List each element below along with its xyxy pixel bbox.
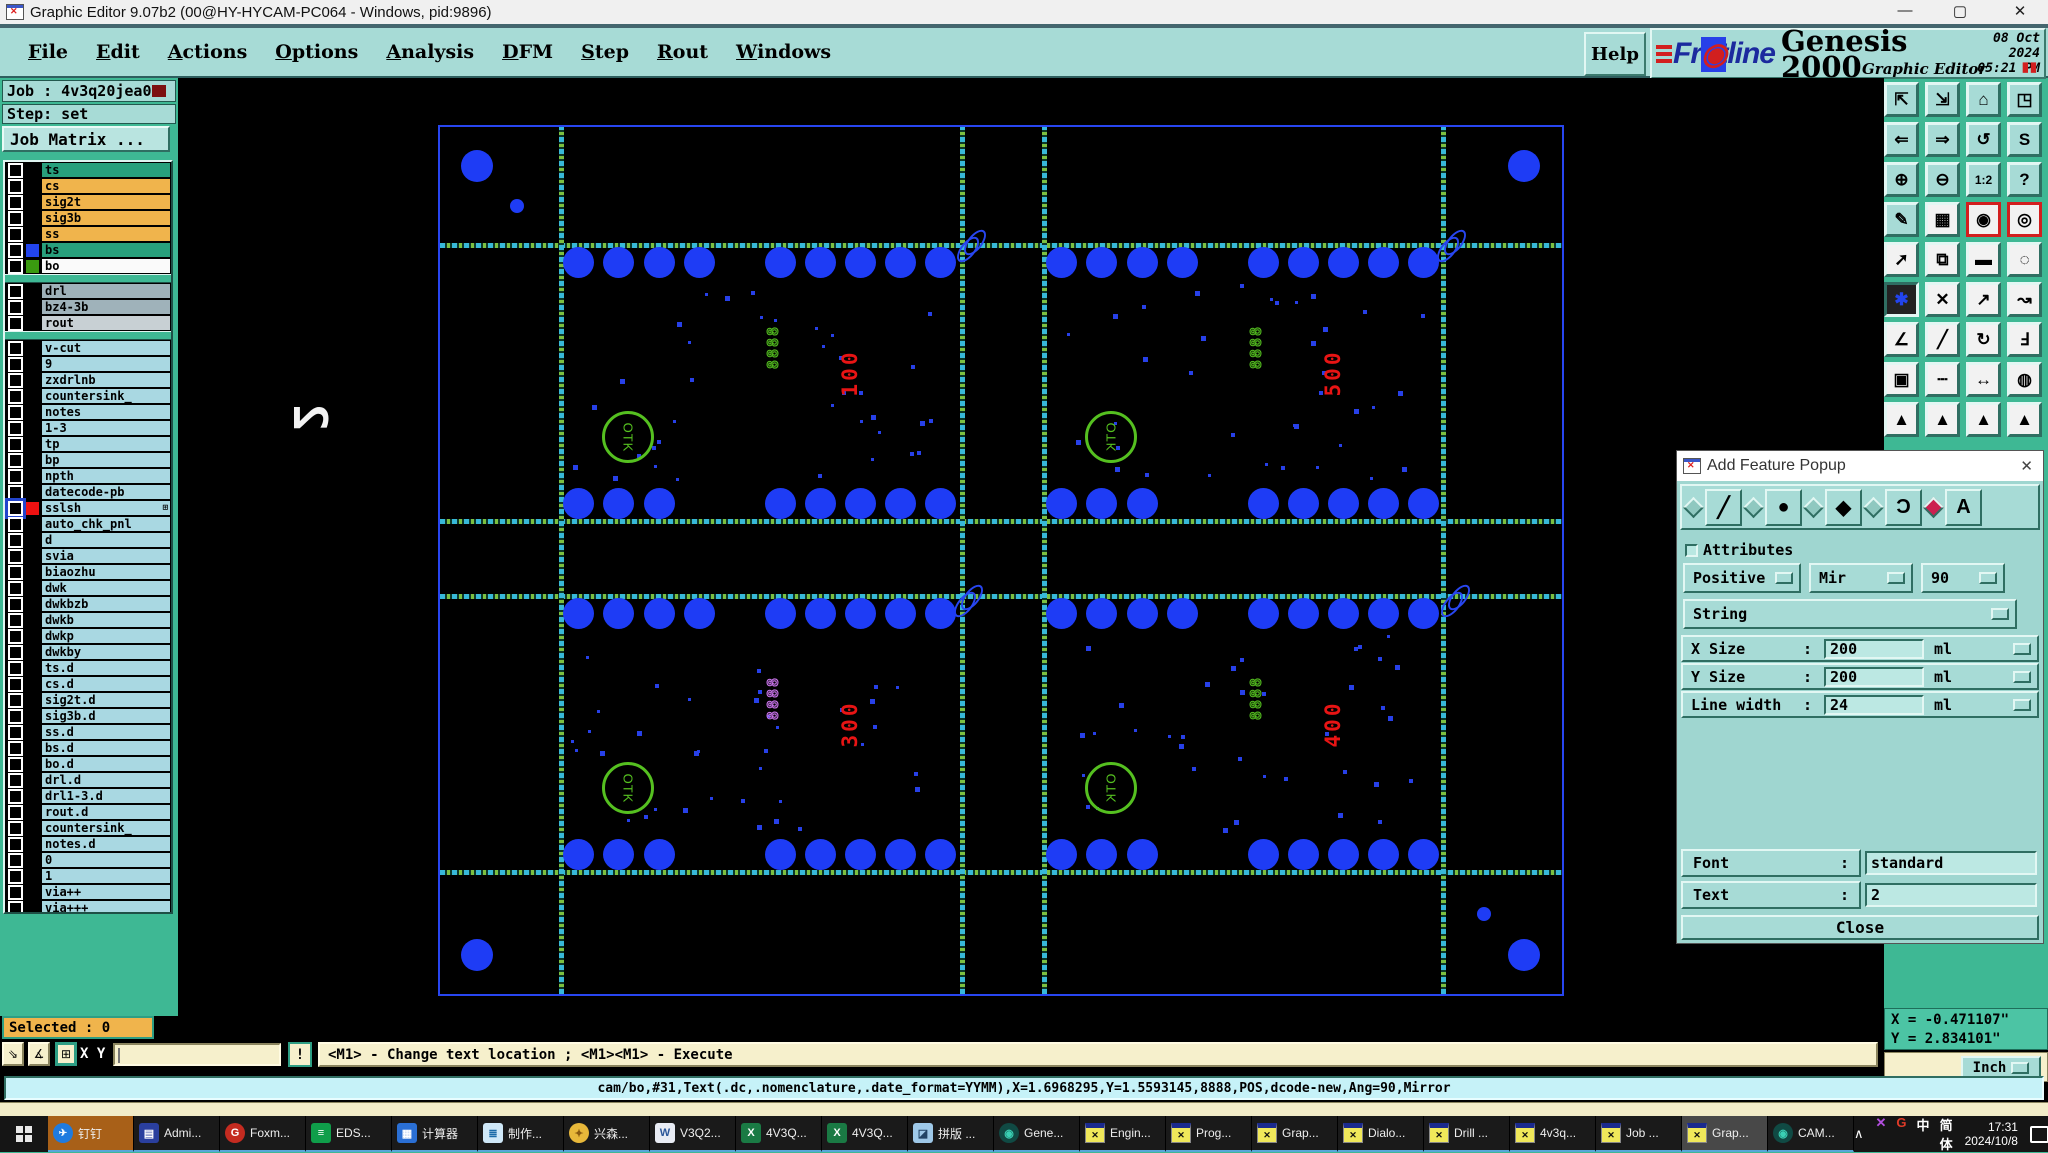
layer-row-npth[interactable]: npth (5, 468, 171, 484)
layer-name[interactable]: zxdrlnb (41, 372, 171, 388)
taskbar-item-拼版[interactable]: 拼版 ... (908, 1116, 994, 1152)
surface-tool-icon[interactable]: ◆ (1825, 489, 1862, 526)
layer-row-bs[interactable]: bs (5, 242, 171, 258)
pad[interactable] (1288, 488, 1319, 519)
layer-visibility-checkbox[interactable] (8, 501, 23, 516)
pad[interactable] (765, 247, 796, 278)
pcb-canvas[interactable]: 2 OTK1008888OTK5008888OTK3008888OTK40088… (178, 78, 1884, 1016)
layer-name[interactable]: rout (41, 315, 171, 331)
menu-actions[interactable]: Actions (168, 41, 248, 63)
layer-visibility-checkbox[interactable] (8, 693, 23, 708)
layer-row-sig3b[interactable]: sig3b (5, 210, 171, 226)
layer-row-zxdrlnb[interactable]: zxdrlnb (5, 372, 171, 388)
menu-analysis[interactable]: Analysis (386, 41, 474, 63)
layer-visibility-checkbox[interactable] (8, 789, 23, 804)
pad-swap-icon[interactable]: ▣ (1884, 362, 1919, 397)
pad[interactable] (563, 247, 594, 278)
layer-row-notes.d[interactable]: notes.d (5, 836, 171, 852)
layer-visibility-checkbox[interactable] (8, 533, 23, 548)
overlap-circles-icon[interactable]: ◍ (2007, 362, 2042, 397)
layer-visibility-checkbox[interactable] (8, 837, 23, 852)
pad[interactable] (885, 839, 916, 870)
pcb-board-top-left[interactable]: OTK1008888 (559, 243, 960, 519)
layer-visibility-checkbox[interactable] (8, 163, 23, 178)
pad[interactable] (1086, 839, 1117, 870)
x-size-input[interactable]: 200 (1824, 639, 1924, 659)
layer-visibility-checkbox[interactable] (8, 357, 23, 372)
window-xy-icon[interactable]: ◳ (2007, 82, 2042, 117)
layer-visibility-checkbox[interactable] (8, 741, 23, 756)
net-highlight-a-icon[interactable]: ◉ (1966, 202, 2001, 237)
pad[interactable] (805, 839, 836, 870)
layer-visibility-checkbox[interactable] (8, 821, 23, 836)
line-width-input[interactable]: 24 (1824, 695, 1924, 715)
taskbar-item-钉钉[interactable]: 钉钉 (48, 1116, 134, 1152)
layer-row-sig2t[interactable]: sig2t (5, 194, 171, 210)
pad[interactable] (603, 598, 634, 629)
layer-name[interactable]: bz4-3b (41, 299, 171, 315)
taskbar-item-gene[interactable]: Gene... (994, 1116, 1080, 1152)
layer-name[interactable]: ss.d (41, 724, 171, 740)
pad[interactable] (563, 598, 594, 629)
warning-button[interactable]: ! (288, 1042, 312, 1067)
home-view-icon[interactable]: ⌂ (1966, 82, 2001, 117)
layer-name[interactable]: drl.d (41, 772, 171, 788)
layer-name[interactable]: bo.d (41, 756, 171, 772)
layer-name[interactable]: 9 (41, 356, 171, 372)
close-button[interactable]: ✕ (2005, 2, 2035, 20)
start-button[interactable] (0, 1116, 48, 1152)
layer-row-countersink_[interactable]: countersink_ (5, 820, 171, 836)
tray-g-icon[interactable]: G (1896, 1115, 1906, 1153)
layer-name[interactable]: dwkb (41, 612, 171, 628)
layer-row-bs.d[interactable]: bs.d (5, 740, 171, 756)
pad[interactable] (684, 598, 715, 629)
line-tool-icon[interactable]: ╱ (1705, 489, 1742, 526)
apex-c-icon[interactable]: ▲ (1966, 402, 2001, 437)
pad[interactable] (925, 488, 956, 519)
layer-row-bz4-3b[interactable]: bz4-3b (5, 299, 171, 315)
line-tool-selector[interactable] (1683, 496, 1704, 517)
pad[interactable] (845, 598, 876, 629)
layer-visibility-checkbox[interactable] (8, 243, 23, 258)
taskbar-item-cam[interactable]: CAM... (1768, 1116, 1854, 1152)
pcb-board-top-right[interactable]: OTK5008888 (1042, 243, 1443, 519)
layer-name[interactable]: drl (41, 283, 171, 299)
width-measure-icon[interactable]: ↔ (1966, 362, 2001, 397)
taskbar-item-4v3q[interactable]: 4V3Q... (822, 1116, 908, 1152)
pad[interactable] (805, 488, 836, 519)
pad[interactable] (1046, 839, 1077, 870)
layer-visibility-checkbox[interactable] (8, 421, 23, 436)
menu-dfm[interactable]: DFM (502, 41, 553, 63)
layer-name[interactable]: dwkby (41, 644, 171, 660)
menu-file[interactable]: File (28, 41, 68, 63)
menu-edit[interactable]: Edit (96, 41, 140, 63)
layer-name[interactable]: 1 (41, 868, 171, 884)
layer-row-cs[interactable]: cs (5, 178, 171, 194)
layer-visibility-checkbox[interactable] (8, 373, 23, 388)
pad[interactable] (1086, 598, 1117, 629)
layer-row-ss[interactable]: ss (5, 226, 171, 242)
pad[interactable] (684, 247, 715, 278)
layer-name[interactable]: notes.d (41, 836, 171, 852)
pad[interactable] (1408, 247, 1439, 278)
layer-row-dwkp[interactable]: dwkp (5, 628, 171, 644)
layer-name[interactable]: bs (41, 242, 171, 258)
pad[interactable] (1248, 488, 1279, 519)
layer-name[interactable]: svia (41, 548, 171, 564)
layer-visibility-checkbox[interactable] (8, 645, 23, 660)
grid-icon[interactable]: ▦ (1925, 202, 1960, 237)
layer-name[interactable]: ts.d (41, 660, 171, 676)
layer-row-v-cut[interactable]: v-cut (5, 340, 171, 356)
pad[interactable] (805, 598, 836, 629)
pad[interactable] (1127, 488, 1158, 519)
layer-row-auto_chk_pnl[interactable]: auto_chk_pnl (5, 516, 171, 532)
pad[interactable] (1046, 247, 1077, 278)
text-tool-icon[interactable]: A (1945, 489, 1982, 526)
pad[interactable] (563, 488, 594, 519)
job-matrix-button[interactable]: Job Matrix ... (2, 126, 170, 152)
copy-feature-icon[interactable]: ⧉ (1925, 242, 1960, 277)
layer-row-cs.d[interactable]: cs.d (5, 676, 171, 692)
apex-a-icon[interactable]: ▲ (1884, 402, 1919, 437)
layer-name[interactable]: dwkp (41, 628, 171, 644)
attributes-checkbox[interactable] (1685, 544, 1698, 557)
layer-row-drl.d[interactable]: drl.d (5, 772, 171, 788)
taskbar-item-4v3q[interactable]: 4V3Q... (736, 1116, 822, 1152)
angle-measure-icon[interactable]: ∠ (1884, 322, 1919, 357)
mirror-feature-icon[interactable]: Ⅎ (2007, 322, 2042, 357)
pad[interactable] (925, 839, 956, 870)
scale-1-2-icon[interactable]: 1:2 (1966, 162, 2001, 197)
layer-name[interactable]: via+++ (41, 900, 171, 914)
previous-view-icon[interactable]: ↺ (1966, 122, 2001, 157)
pad[interactable] (603, 488, 634, 519)
pad[interactable] (603, 839, 634, 870)
pad[interactable] (925, 247, 956, 278)
pad[interactable] (1288, 839, 1319, 870)
layer-row-datecode-pb[interactable]: datecode-pb (5, 484, 171, 500)
notification-center[interactable]: 1 (2030, 1126, 2048, 1143)
pad[interactable] (644, 839, 675, 870)
layer-name[interactable]: countersink_ (41, 388, 171, 404)
pad[interactable] (1328, 247, 1359, 278)
taskbar-item-drill[interactable]: Drill ... (1424, 1116, 1510, 1152)
layer-visibility-checkbox[interactable] (8, 284, 23, 299)
menu-step[interactable]: Step (581, 41, 629, 63)
popup-title-bar[interactable]: Add Feature Popup ✕ (1677, 451, 2043, 481)
layer-row-d[interactable]: d (5, 532, 171, 548)
minimize-button[interactable]: — (1890, 2, 1920, 19)
pad[interactable] (1086, 247, 1117, 278)
layer-visibility-checkbox[interactable] (8, 437, 23, 452)
menu-help[interactable]: Help (1584, 32, 1646, 76)
layer-name[interactable]: ss (41, 226, 171, 242)
layer-visibility-checkbox[interactable] (8, 195, 23, 210)
pad[interactable] (1408, 598, 1439, 629)
layer-visibility-checkbox[interactable] (8, 581, 23, 596)
cluster-icon[interactable]: ✱ (1884, 282, 1919, 317)
pad[interactable] (563, 839, 594, 870)
layer-visibility-checkbox[interactable] (8, 405, 23, 420)
layer-visibility-checkbox[interactable] (8, 677, 23, 692)
layer-visibility-checkbox[interactable] (8, 227, 23, 242)
pad[interactable] (644, 488, 675, 519)
layer-row-biaozhu[interactable]: biaozhu (5, 564, 171, 580)
layer-name[interactable]: ts (41, 162, 171, 178)
pcb-board-bottom-left[interactable]: OTK3008888 (559, 594, 960, 870)
surface-tool-selector[interactable] (1803, 496, 1824, 517)
layer-row-countersink_[interactable]: countersink_ (5, 388, 171, 404)
taskbar-item-foxm[interactable]: Foxm... (220, 1116, 306, 1152)
layer-visibility-checkbox[interactable] (8, 885, 23, 900)
pad[interactable] (1368, 247, 1399, 278)
taskbar-item-job[interactable]: Job ... (1596, 1116, 1682, 1152)
tray-x-icon[interactable]: ✕ (1876, 1115, 1887, 1153)
mirror-dropdown[interactable]: Mir (1809, 563, 1913, 593)
layer-row-9[interactable]: 9 (5, 356, 171, 372)
layer-visibility-checkbox[interactable] (8, 901, 23, 915)
taskbar-item-计算器[interactable]: 计算器 (392, 1116, 478, 1152)
layer-row-bo[interactable]: bo (5, 258, 171, 274)
pad[interactable] (1328, 598, 1359, 629)
snap-mode-button[interactable]: ⇘ (2, 1042, 24, 1066)
layer-name[interactable]: d (41, 532, 171, 548)
move-feature-icon[interactable]: ➚ (1884, 242, 1919, 277)
layer-visibility-checkbox[interactable] (8, 179, 23, 194)
layer-row-sig2t.d[interactable]: sig2t.d (5, 692, 171, 708)
select-pad-icon[interactable]: ◌ (2007, 242, 2042, 277)
net-highlight-b-icon[interactable]: ◎ (2007, 202, 2042, 237)
pad[interactable] (765, 839, 796, 870)
layer-row-sslsh[interactable]: sslsh⊞ (5, 500, 171, 516)
taskbar-item-admi[interactable]: Admi... (134, 1116, 220, 1152)
pad[interactable] (1288, 247, 1319, 278)
pad[interactable] (1368, 839, 1399, 870)
layer-row-dwkbzb[interactable]: dwkbzb (5, 596, 171, 612)
pad[interactable] (1127, 839, 1158, 870)
layer-visibility-checkbox[interactable] (8, 453, 23, 468)
taskbar-item-engin[interactable]: Engin... (1080, 1116, 1166, 1152)
shrink-view-icon[interactable]: ⊖ (1925, 162, 1960, 197)
pad[interactable] (603, 247, 634, 278)
menu-options[interactable]: Options (275, 41, 358, 63)
layer-row-rout.d[interactable]: rout.d (5, 804, 171, 820)
layer-name[interactable]: sig2t.d (41, 692, 171, 708)
attributes-row[interactable]: Attributes (1685, 541, 1793, 559)
layer-visibility-checkbox[interactable] (8, 629, 23, 644)
pad[interactable] (805, 247, 836, 278)
layer-name[interactable]: sig3b.d (41, 708, 171, 724)
layer-row-drl[interactable]: drl (5, 283, 171, 299)
pad[interactable] (644, 598, 675, 629)
taskbar-item-grap[interactable]: Grap... (1252, 1116, 1338, 1152)
layer-row-dwkby[interactable]: dwkby (5, 644, 171, 660)
pad[interactable] (885, 598, 916, 629)
taskbar-item-prog[interactable]: Prog... (1166, 1116, 1252, 1152)
layer-visibility-checkbox[interactable] (8, 565, 23, 580)
layer-name[interactable]: npth (41, 468, 171, 484)
menu-rout[interactable]: Rout (657, 41, 708, 63)
layer-name[interactable]: v-cut (41, 340, 171, 356)
pad[interactable] (1046, 488, 1077, 519)
tray-chevron-icon[interactable]: ∧ (1854, 1126, 1864, 1142)
dash-line-icon[interactable]: ┄ (1925, 362, 1960, 397)
layer-name[interactable]: dwk (41, 580, 171, 596)
pad[interactable] (845, 839, 876, 870)
pad[interactable] (1167, 247, 1198, 278)
layer-visibility-checkbox[interactable] (8, 725, 23, 740)
layer-row-via++[interactable]: via++ (5, 884, 171, 900)
layer-visibility-checkbox[interactable] (8, 485, 23, 500)
layer-visibility-checkbox[interactable] (8, 869, 23, 884)
text-tool-selector[interactable] (1923, 496, 1944, 517)
layer-name[interactable]: sig2t (41, 194, 171, 210)
pad[interactable] (644, 247, 675, 278)
pad[interactable] (1328, 839, 1359, 870)
layer-row-1[interactable]: 1 (5, 868, 171, 884)
arc-tool-selector[interactable] (1863, 496, 1884, 517)
layer-row-bp[interactable]: bp (5, 452, 171, 468)
layer-name[interactable]: biaozhu (41, 564, 171, 580)
layer-visibility-checkbox[interactable] (8, 469, 23, 484)
profile-path-icon[interactable]: S (2007, 122, 2042, 157)
editor-tools-icon[interactable]: ✎ (1884, 202, 1919, 237)
pad[interactable] (885, 247, 916, 278)
layer-row-ss.d[interactable]: ss.d (5, 724, 171, 740)
font-input[interactable]: standard (1865, 851, 2037, 875)
pad[interactable] (1248, 598, 1279, 629)
taskbar-clock[interactable]: 17:312024/10/8 (1965, 1120, 2018, 1148)
layer-row-rout[interactable]: rout (5, 315, 171, 331)
layer-name[interactable]: sslsh⊞ (41, 500, 171, 516)
layer-row-tp[interactable]: tp (5, 436, 171, 452)
y-size-input[interactable]: 200 (1824, 667, 1924, 687)
pad-tool-selector[interactable] (1743, 496, 1764, 517)
pan-right-icon[interactable]: ⇒ (1925, 122, 1960, 157)
layer-row-drl1-3.d[interactable]: drl1-3.d (5, 788, 171, 804)
pcb-board-bottom-right[interactable]: OTK4008888 (1042, 594, 1443, 870)
layer-visibility-checkbox[interactable] (8, 517, 23, 532)
measure-icon[interactable]: ▬ (1966, 242, 2001, 277)
layer-visibility-checkbox[interactable] (8, 661, 23, 676)
rotate-feature-icon[interactable]: ↻ (1966, 322, 2001, 357)
layer-visibility-checkbox[interactable] (8, 300, 23, 315)
popup-close-button[interactable]: Close (1681, 915, 2039, 940)
pad[interactable] (845, 247, 876, 278)
layer-row-bo.d[interactable]: bo.d (5, 756, 171, 772)
layer-visibility-checkbox[interactable] (8, 805, 23, 820)
layer-row-via+++[interactable]: via+++ (5, 900, 171, 914)
layer-visibility-checkbox[interactable] (8, 259, 23, 274)
text-input[interactable]: 2 (1865, 883, 2037, 907)
pad[interactable] (1368, 488, 1399, 519)
pad[interactable] (1167, 598, 1198, 629)
pad[interactable] (1408, 488, 1439, 519)
pan-left-icon[interactable]: ⇐ (1884, 122, 1919, 157)
layer-row-1-3[interactable]: 1-3 (5, 420, 171, 436)
pad[interactable] (885, 488, 916, 519)
pad[interactable] (1086, 488, 1117, 519)
layer-name[interactable]: notes (41, 404, 171, 420)
layer-row-ts.d[interactable]: ts.d (5, 660, 171, 676)
angle-dropdown[interactable]: 90 (1921, 563, 2005, 593)
taskbar-item-兴森[interactable]: 兴森... (564, 1116, 650, 1152)
layer-name[interactable]: dwkbzb (41, 596, 171, 612)
zoom-out-window-icon[interactable]: ⇲ (1925, 82, 1960, 117)
pad[interactable] (925, 598, 956, 629)
taskbar-item-eds[interactable]: EDS... (306, 1116, 392, 1152)
expand-view-icon[interactable]: ⊕ (1884, 162, 1919, 197)
pad[interactable] (1248, 247, 1279, 278)
layer-name[interactable]: via++ (41, 884, 171, 900)
pad[interactable] (1368, 598, 1399, 629)
pad-tool-icon[interactable]: ● (1765, 489, 1802, 526)
grid-mode-button[interactable]: ⊞ (55, 1042, 77, 1066)
pad[interactable] (1408, 839, 1439, 870)
shape-dropdown[interactable]: String (1683, 599, 2017, 629)
apex-d-icon[interactable]: ▲ (2007, 402, 2042, 437)
layer-name[interactable]: rout.d (41, 804, 171, 820)
layer-row-notes[interactable]: notes (5, 404, 171, 420)
layer-row-dwkb[interactable]: dwkb (5, 612, 171, 628)
layer-name[interactable]: cs.d (41, 676, 171, 692)
layer-name[interactable]: auto_chk_pnl (41, 516, 171, 532)
angle-mode-button[interactable]: ∡ (28, 1042, 50, 1066)
pad[interactable] (765, 598, 796, 629)
layer-row-dwk[interactable]: dwk (5, 580, 171, 596)
pad[interactable] (1127, 598, 1158, 629)
layer-visibility-checkbox[interactable] (8, 316, 23, 331)
menu-windows[interactable]: Windows (736, 41, 831, 63)
maximize-button[interactable]: ▢ (1945, 2, 1975, 20)
pad[interactable] (1046, 598, 1077, 629)
layer-visibility-checkbox[interactable] (8, 341, 23, 356)
delete-feature-icon[interactable]: ✕ (1925, 282, 1960, 317)
layer-visibility-checkbox[interactable] (8, 389, 23, 404)
layer-name[interactable]: drl1-3.d (41, 788, 171, 804)
ime-variant-label[interactable]: 简体 (1940, 1115, 1953, 1153)
taskbar-item-制作[interactable]: 制作... (478, 1116, 564, 1152)
layer-visibility-checkbox[interactable] (8, 613, 23, 628)
layer-name[interactable]: cs (41, 178, 171, 194)
taskbar-item-v3q2[interactable]: V3Q2... (650, 1116, 736, 1152)
help-question-icon[interactable]: ? (2007, 162, 2042, 197)
pad[interactable] (1288, 598, 1319, 629)
resize-down-icon[interactable]: ↝ (2007, 282, 2042, 317)
taskbar-item-dialo[interactable]: Dialo... (1338, 1116, 1424, 1152)
layer-row-ts[interactable]: ts (5, 162, 171, 178)
layer-visibility-checkbox[interactable] (8, 709, 23, 724)
layer-row-sig3b.d[interactable]: sig3b.d (5, 708, 171, 724)
layer-row-0[interactable]: 0 (5, 852, 171, 868)
resize-up-icon[interactable]: ↗ (1966, 282, 2001, 317)
pad[interactable] (1127, 247, 1158, 278)
layer-visibility-checkbox[interactable] (8, 773, 23, 788)
pad[interactable] (1328, 488, 1359, 519)
layer-visibility-checkbox[interactable] (8, 597, 23, 612)
taskbar-item-grap[interactable]: Grap... (1682, 1116, 1768, 1152)
pad[interactable] (845, 488, 876, 519)
layer-visibility-checkbox[interactable] (8, 757, 23, 772)
popup-close-icon[interactable]: ✕ (2020, 457, 2033, 475)
layer-row-svia[interactable]: svia (5, 548, 171, 564)
pad[interactable] (1248, 839, 1279, 870)
taskbar-item-4v3q[interactable]: 4v3q... (1510, 1116, 1596, 1152)
layer-name[interactable]: 0 (41, 852, 171, 868)
